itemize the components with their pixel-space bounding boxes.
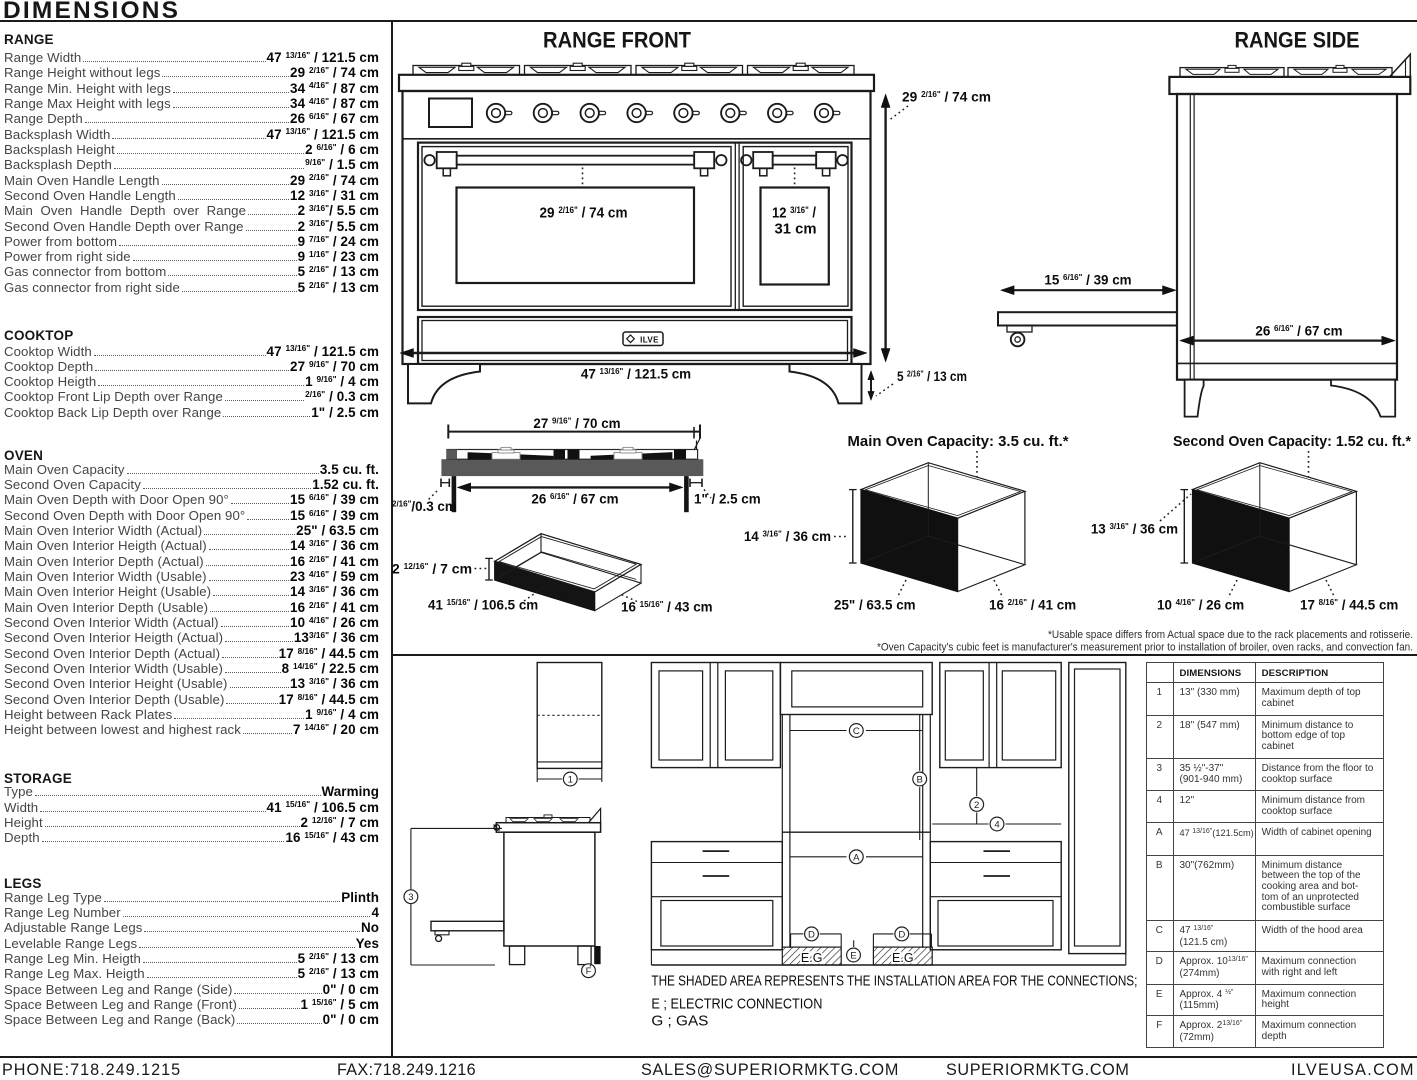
svg-text:3: 3 <box>408 892 413 903</box>
svg-text:16 15/16" / 43 cm: 16 15/16" / 43 cm <box>621 600 713 615</box>
svg-text:E: E <box>850 951 856 962</box>
svg-text:B: B <box>916 775 922 786</box>
svg-text:1: 1 <box>568 775 573 786</box>
svg-text:2: 2 <box>974 800 979 811</box>
svg-text:14 3/16" / 36 cm: 14 3/16" / 36 cm <box>744 529 831 544</box>
svg-text:16 2/16" / 41 cm: 16 2/16" / 41 cm <box>989 598 1076 613</box>
svg-text:Second Oven Capacity: 1.52 cu.: Second Oven Capacity: 1.52 cu. ft.* <box>1173 433 1411 450</box>
svg-text:RANGE SIDE: RANGE SIDE <box>1235 28 1360 53</box>
svg-text:10 4/16" / 26 cm: 10 4/16" / 26 cm <box>1157 598 1244 613</box>
svg-text:27 9/16" / 70 cm: 27 9/16" / 70 cm <box>533 416 620 431</box>
svg-text:D: D <box>808 929 815 940</box>
svg-text:26 6/16" / 67 cm: 26 6/16" / 67 cm <box>1255 324 1342 339</box>
svg-text:G ; GAS: G ; GAS <box>651 1013 708 1030</box>
svg-text:THE SHADED AREA REPRESENTS THE: THE SHADED AREA REPRESENTS THE INSTALLAT… <box>651 973 1137 990</box>
svg-text:*Usable space differs from Act: *Usable space differs from Actual space … <box>1048 629 1413 641</box>
svg-text:4: 4 <box>994 820 1000 831</box>
svg-text:*Oven Capacity's cubic feet is: *Oven Capacity's cubic feet is manufactu… <box>877 642 1413 654</box>
svg-text:17 8/16" / 44.5 cm: 17 8/16" / 44.5 cm <box>1300 598 1398 613</box>
svg-text:5 2/16" / 13 cm: 5 2/16" / 13 cm <box>897 369 967 385</box>
svg-text:41 15/16" / 106.5 cm: 41 15/16" / 106.5 cm <box>428 598 538 613</box>
svg-text:13 3/16" / 36 cm: 13 3/16" / 36 cm <box>1091 522 1178 537</box>
svg-text:C: C <box>853 726 860 737</box>
svg-text:26 6/16" / 67 cm: 26 6/16" / 67 cm <box>531 492 618 507</box>
svg-text:29 2/16" / 74 cm: 29 2/16" / 74 cm <box>902 89 991 105</box>
svg-text:31 cm: 31 cm <box>775 222 817 238</box>
svg-text:F: F <box>586 966 592 977</box>
svg-text:47 13/16" / 121.5 cm: 47 13/16" / 121.5 cm <box>581 367 691 382</box>
svg-text:29 2/16" / 74 cm: 29 2/16" / 74 cm <box>540 205 628 221</box>
svg-text:15 6/16" / 39 cm: 15 6/16" / 39 cm <box>1044 273 1131 288</box>
svg-text:Main Oven Capacity: 3.5 cu. ft: Main Oven Capacity: 3.5 cu. ft.* <box>848 433 1069 450</box>
svg-text:E.G: E.G <box>892 951 914 965</box>
svg-text:D: D <box>898 929 905 940</box>
svg-text:E ; ELECTRIC CONNECTION: E ; ELECTRIC CONNECTION <box>651 996 822 1013</box>
svg-text:2 12/16" / 7 cm: 2 12/16" / 7 cm <box>392 562 472 577</box>
svg-text:2/16"/0.3 cm: 2/16"/0.3 cm <box>392 499 457 514</box>
svg-text:RANGE FRONT: RANGE FRONT <box>543 28 692 53</box>
svg-text:E.G: E.G <box>801 951 823 965</box>
svg-text:1" / 2.5 cm: 1" / 2.5 cm <box>694 492 761 507</box>
svg-text:12 3/16" /: 12 3/16" / <box>772 205 816 221</box>
svg-text:ILVE: ILVE <box>640 335 659 344</box>
svg-text:25" / 63.5 cm: 25" / 63.5 cm <box>834 598 916 613</box>
svg-text:A: A <box>853 852 860 863</box>
